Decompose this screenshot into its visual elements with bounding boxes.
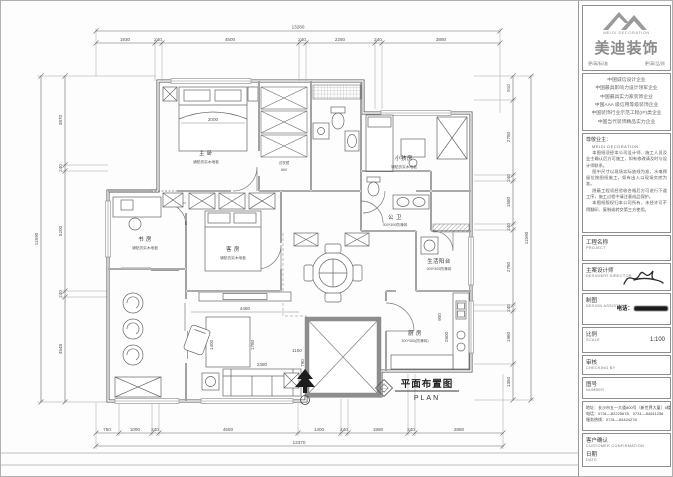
phone-label: 电话： (616, 304, 633, 312)
svg-text:13280: 13280 (292, 25, 305, 30)
field-check: 审核 CHECKING BY (582, 355, 671, 375)
date-en: DATE (586, 458, 667, 462)
room-note-study: 铺贴仿实木地板 (132, 245, 158, 250)
field-project: 工程名称 PROJECT (582, 235, 671, 261)
svg-text:4480: 4480 (240, 306, 251, 311)
study-furniture (113, 193, 183, 230)
customer-confirm-box: 客户确认 CUSTOMER CONFIRMATION 日期 DATE (582, 433, 671, 467)
field-designer: 主案设计师 DESIGNER DIRECTOR (582, 263, 671, 291)
notes-box: 尊敬业主： MEIDI DECORATION 本图纸须经本公司设计师、施工人员及… (582, 133, 671, 233)
drawing-sheet: 主 卧 铺贴仿实木地板 试衣镜 660 小孩房 铺贴仿实木地板 书 房 铺贴仿实… (0, 0, 673, 477)
svg-text:13370: 13370 (293, 440, 306, 445)
svg-text:4548: 4548 (58, 343, 63, 354)
room-label-master: 主 卧 (199, 149, 213, 157)
field-check-en: CHECKING BY (586, 366, 667, 370)
room-label-kids: 小孩房 (395, 154, 413, 162)
room-label-guest: 客 房 (226, 245, 240, 253)
address-line: 服务热线：0731—84404278 (586, 417, 667, 423)
roof-logo-icon (601, 9, 653, 31)
svg-text:4500: 4500 (225, 37, 236, 42)
room-note-kids: 铺贴仿实木地板 (391, 164, 417, 169)
svg-text:1580: 1580 (506, 196, 511, 207)
notes-paragraph: 本图纸版权归本公司所有，未经许可不得翻印、复制或转交第三方使用。 (586, 200, 667, 213)
svg-text:1400: 1400 (314, 427, 325, 432)
cert-line: 中国最具实力家装饰企业 (586, 94, 667, 102)
svg-text:240: 240 (506, 174, 511, 182)
master-closet (261, 87, 307, 157)
cert-line: 中国诚信设计企业 (586, 77, 667, 85)
closet-dim: 660 (281, 168, 287, 172)
floor-plan: 主 卧 铺贴仿实木地板 试衣镜 660 小孩房 铺贴仿实木地板 书 房 铺贴仿实… (1, 1, 578, 477)
room-label-study: 书 房 (138, 235, 152, 243)
svg-text:2000: 2000 (208, 117, 219, 122)
svg-text:3870: 3870 (58, 114, 63, 125)
field-drafter-cn: 制图 (586, 296, 667, 304)
confirm-cn: 客户确认 (586, 436, 667, 444)
svg-text:11590: 11590 (34, 232, 39, 245)
svg-text:240: 240 (506, 304, 511, 312)
cert-line: 中国装饰行业示范工程(IP)类企业 (586, 110, 667, 118)
svg-text:1930: 1930 (120, 37, 131, 42)
date-cn: 日期 (586, 450, 667, 458)
scale-value: 1:100 (650, 337, 665, 343)
svg-text:790: 790 (300, 359, 305, 367)
address-box: 地址：长沙市五一大道800号（新世界大厦）5楼 电话：0731—82225678… (582, 401, 671, 431)
field-check-cn: 审核 (586, 358, 667, 366)
room-label-service: 生活阳台 (427, 257, 451, 265)
elevator-shaft (307, 319, 379, 395)
svg-text:5200: 5200 (58, 225, 63, 236)
kids-room-furniture (366, 115, 467, 171)
svg-text:3880: 3880 (436, 37, 447, 42)
notes-paragraph: 隐蔽工程须经验收合格后方可进行下道工序，施工过程中请注意成品保护。 (586, 188, 667, 201)
bathroom-fixtures (367, 177, 429, 209)
svg-text:1150: 1150 (292, 348, 302, 353)
svg-text:240: 240 (340, 427, 348, 432)
certifications-box: 中国诚信设计企业 中国最具影响力设计领军企业 中国最具实力家装饰企业 中国AAA… (582, 73, 671, 131)
field-number: 图号 NUMBER (582, 377, 671, 399)
field-scale: 比例 SCALE 1:100 (582, 327, 671, 353)
cert-line: 中国AAA 级信用等级装饰企业 (586, 102, 667, 110)
room-label-bath: 公 卫 (388, 214, 402, 221)
slogan-right: 更/高/品/质 (645, 61, 665, 67)
field-number-cn: 图号 (586, 380, 667, 388)
slogan-left: 更/高/标/准 (588, 61, 608, 67)
field-project-en: PROJECT (586, 246, 667, 250)
plan-title-cn: 平面布置图 (401, 378, 454, 390)
room-note-master: 铺贴仿实木地板 (193, 159, 219, 164)
svg-text:2880: 2880 (454, 427, 465, 432)
cert-line: 中国最具影响力设计领军企业 (586, 85, 667, 93)
room-note-kitchen: 300*300(防滑砖) (401, 338, 428, 343)
svg-text:240: 240 (151, 427, 159, 432)
notes-paragraph: 本图纸须经本公司设计师、施工人员及业主确认后方可施工，如有修改请及时与设计师联系… (586, 150, 667, 169)
title-block-panel: MEIDI DECORATION 美迪装饰 更/高/标/准 更/高/品/质 中国… (578, 1, 673, 477)
svg-text:1090: 1090 (130, 427, 141, 432)
svg-text:2600: 2600 (444, 331, 449, 342)
phone-redacted (634, 306, 668, 311)
notes-sub: MEIDI DECORATION (592, 144, 667, 149)
room-label-kitchen: 厨 房 (408, 329, 422, 337)
svg-text:2780: 2780 (506, 131, 511, 142)
svg-text:1400: 1400 (209, 339, 214, 350)
logo-en-1: MEIDI (603, 30, 617, 35)
confirm-en: CUSTOMER CONFIRMATION (586, 444, 667, 448)
svg-text:1350: 1350 (506, 376, 511, 387)
svg-text:750: 750 (103, 427, 111, 432)
cert-line: 中国当代装饰精品实力企业 (586, 119, 667, 127)
svg-text:240: 240 (58, 164, 63, 172)
notes-paragraph: 图中尺寸以现场实际放线为准，水电预留位按图纸施工，如有出入以现场交底为准。 (586, 169, 667, 188)
svg-text:4550: 4550 (223, 427, 234, 432)
svg-text:240: 240 (407, 427, 415, 432)
balcony-plants (115, 293, 161, 397)
plan-title-group: 平面布置图 PLAN (376, 378, 459, 402)
room-note-service: 300*300防滑砖 (427, 266, 452, 271)
room-note-guest: 铺贴仿实木地板 (220, 255, 246, 260)
sheet-frame (1, 453, 578, 465)
logo-en-2: DECORATION (618, 30, 649, 35)
svg-text:1980: 1980 (373, 427, 384, 432)
plan-title-en: PLAN (414, 395, 440, 402)
master-bathroom-fixtures (313, 107, 359, 151)
field-number-en: NUMBER (586, 388, 667, 392)
service-balcony-fixtures (421, 237, 438, 254)
svg-text:1960: 1960 (506, 331, 511, 342)
svg-text:1780: 1780 (250, 339, 255, 350)
mirror-label: 试衣镜 (279, 160, 290, 165)
svg-text:240: 240 (374, 37, 382, 42)
field-project-cn: 工程名称 (586, 238, 667, 246)
svg-text:2780: 2780 (506, 261, 511, 272)
svg-text:240: 240 (154, 37, 162, 42)
svg-text:240: 240 (58, 290, 63, 298)
svg-text:2380: 2380 (257, 362, 268, 367)
designer-signature (620, 266, 666, 290)
room-note-bath: 300*300防滑砖 (383, 222, 408, 227)
svg-text:240: 240 (506, 223, 511, 231)
svg-text:900: 900 (437, 313, 442, 321)
svg-text:910: 910 (506, 84, 511, 92)
logo-box: MEIDI DECORATION 美迪装饰 更/高/标/准 更/高/品/质 (582, 5, 671, 71)
field-drafter: 制图 DESIGN ASSISTANT 电话： (582, 293, 671, 325)
svg-text:2250: 2250 (335, 37, 346, 42)
dining-set (294, 233, 369, 302)
svg-text:240: 240 (298, 37, 306, 42)
logo-cn: 美迪装饰 (586, 37, 667, 58)
notes-salute: 尊敬业主： (586, 136, 667, 143)
svg-text:11590: 11590 (524, 231, 529, 244)
